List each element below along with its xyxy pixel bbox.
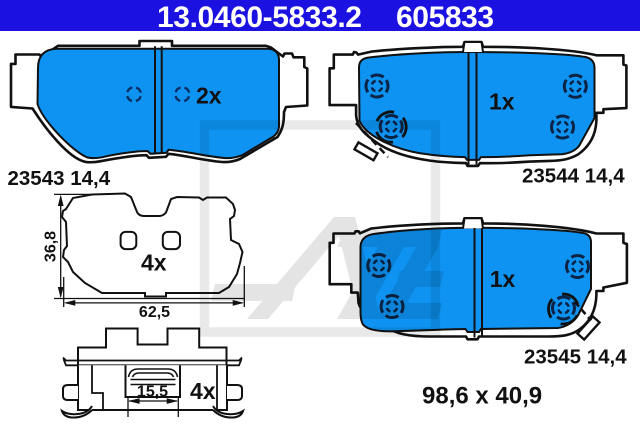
svg-text:36,8: 36,8 [43,231,60,262]
svg-text:23544 14,4: 23544 14,4 [522,165,625,188]
svg-text:98,6 x 40,9: 98,6 x 40,9 [422,383,542,410]
svg-text:4x: 4x [190,378,216,404]
svg-text:2x: 2x [196,82,222,108]
svg-text:15,5: 15,5 [137,384,168,401]
svg-text:62,5: 62,5 [139,304,170,321]
svg-text:23545 14,4: 23545 14,4 [524,346,627,369]
svg-text:4x: 4x [141,250,167,276]
svg-text:1x: 1x [489,88,515,114]
svg-text:1x: 1x [490,266,516,292]
svg-text:13.0460-5833.2: 13.0460-5833.2 [157,1,362,34]
svg-text:605833: 605833 [396,1,494,34]
svg-text:23543 14,4: 23543 14,4 [8,167,111,190]
